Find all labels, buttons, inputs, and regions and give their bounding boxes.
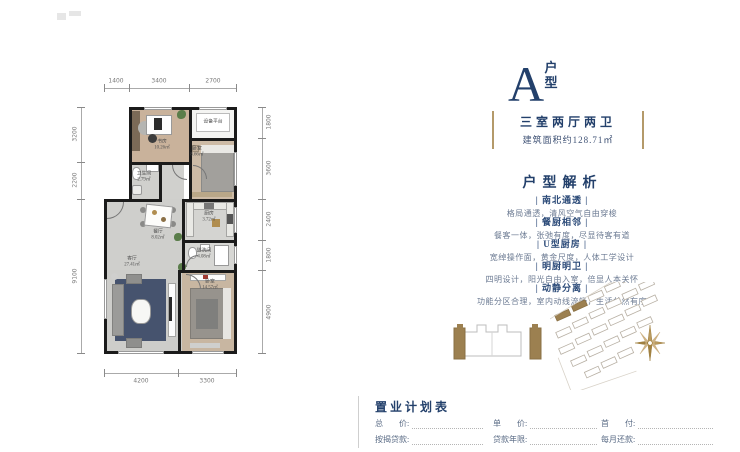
fill-in-line (412, 436, 483, 445)
plate (152, 210, 157, 215)
laptop (154, 118, 162, 130)
kitchen-sink (204, 203, 214, 209)
fill-in-line (530, 420, 597, 429)
field-label: 贷款年限: (493, 434, 527, 445)
field-label: 首 付: (601, 418, 635, 429)
field-total-price: 总 价: (375, 418, 483, 429)
floor-lamp (111, 273, 118, 280)
tv (169, 297, 172, 321)
unit-area-text: 建筑面积约128.71㎡ (494, 133, 642, 146)
plant (177, 110, 186, 119)
window (234, 246, 237, 264)
field-label: 每月还款: (601, 434, 635, 445)
dining-table (144, 204, 173, 229)
room-label-master: 卧室14.57㎡ (202, 279, 218, 290)
compass-icon (633, 322, 667, 364)
decor (203, 275, 208, 279)
washer (132, 185, 142, 195)
room-label-dining: 餐厅8.02㎡ (151, 229, 164, 240)
field-label: 按揭贷款: (375, 434, 409, 445)
bed2-bench (192, 192, 232, 197)
room-label-study: 书房10.26㎡ (154, 139, 170, 150)
fill-in-line (638, 420, 713, 429)
unit-layout-text: 三室两厅两卫 (494, 113, 642, 130)
window (144, 107, 172, 110)
feature-title: | 明厨明卫 | (452, 259, 672, 272)
room-label-living: 客厅27.41㎡ (124, 256, 140, 267)
purchase-plan-heading: 置业计划表 (375, 398, 450, 415)
sofa (112, 284, 124, 336)
window (118, 351, 164, 354)
window (192, 351, 224, 354)
field-monthly-payment: 每月还款: (601, 434, 713, 445)
feature-title: | U型厨房 | (452, 237, 672, 250)
purchase-plan-section: 置业计划表 总 价: 单 价: 首 付: 按揭贷款: 贷款年限: 每月还款: (358, 396, 719, 448)
field-label: 总 价: (375, 418, 409, 429)
shower (214, 245, 229, 266)
field-mortgage: 按揭贷款: (375, 434, 483, 445)
analysis-heading: 户型解析 (470, 172, 655, 192)
room-label-bath1: 卫生间2.79㎡ (137, 171, 151, 182)
unit-type-title: A户型 (488, 58, 578, 110)
master-pillow (223, 288, 231, 339)
building-keyplan (450, 314, 546, 370)
window (234, 152, 237, 186)
coffee-table (131, 299, 151, 324)
room-label-bath2: 盥洗间4.08㎡ (197, 248, 211, 259)
armchair (126, 274, 142, 284)
field-down-payment: 首 付: (601, 418, 713, 429)
bench (190, 343, 220, 348)
bed2-pillow (201, 145, 234, 153)
armchair (126, 338, 142, 348)
plate (161, 217, 166, 222)
unit-suffix: 户型 (544, 61, 558, 91)
field-loan-term: 贷款年限: (493, 434, 597, 445)
feature-title: | 南北通透 | (452, 193, 672, 206)
floorplan-drawing: 书房10.26㎡ 设备平台 卧室8.66㎡ 卫生间2.79㎡ 餐厅8.02㎡ 厨… (104, 107, 237, 354)
room-label-platform: 设备平台 (203, 119, 222, 125)
field-label: 单 价: (493, 418, 527, 429)
window (104, 279, 107, 319)
window (199, 107, 227, 110)
field-unit-price: 单 价: (493, 418, 597, 429)
stove (227, 214, 233, 224)
window (234, 207, 237, 233)
unit-summary-box: 三室两厅两卫 建筑面积约128.71㎡ (492, 111, 644, 149)
room-label-bedroom2: 卧室8.66㎡ (190, 146, 203, 157)
fill-in-line (412, 420, 483, 429)
unit-letter: A (508, 56, 544, 112)
master-blanket (196, 299, 218, 329)
room-label-kitchen: 厨房3.72㎡ (202, 211, 215, 222)
kitchen-counter (186, 202, 194, 237)
fill-in-line (638, 436, 713, 445)
feature-title: | 餐厨相邻 | (452, 215, 672, 228)
floorplan-page: 书房10.26㎡ 设备平台 卧室8.66㎡ 卫生间2.79㎡ 餐厅8.02㎡ 厨… (0, 0, 740, 452)
plant (174, 233, 182, 241)
fill-in-line (530, 436, 597, 445)
